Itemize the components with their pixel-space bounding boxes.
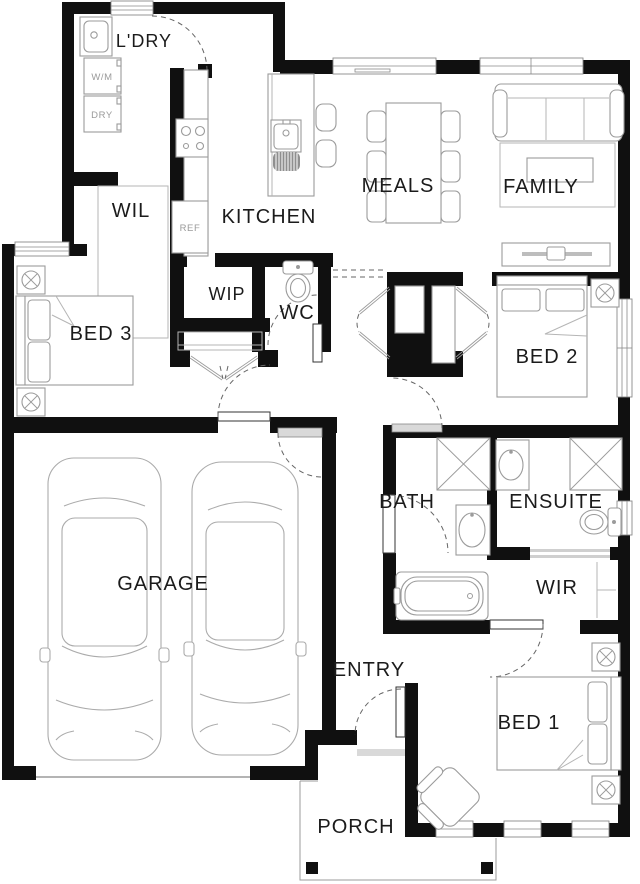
- wir-rails: [597, 562, 616, 618]
- floor-plan: L'DRY WIL KITCHEN WIP WC MEALS FAMILY BE…: [0, 0, 640, 884]
- room-label-bed1: BED 1: [498, 712, 561, 734]
- window-family-icon: [480, 58, 583, 74]
- entry-passage-leaf: [313, 324, 322, 362]
- room-label-wip: WIP: [209, 284, 246, 304]
- garage-contents: [36, 458, 306, 777]
- washer-label: W/M: [91, 72, 112, 83]
- garage-door-leaf: [278, 428, 322, 437]
- linen-double-doors: [357, 287, 390, 359]
- window-bed2-icon: [617, 299, 632, 397]
- bulkhead-dashes: [333, 270, 387, 277]
- vanity-basin-icon: [456, 505, 490, 555]
- linen-closet: [395, 286, 424, 333]
- room-label-bath: BATH: [379, 491, 435, 513]
- front-door-arc: [355, 689, 401, 735]
- room-label-wc: WC: [279, 302, 314, 324]
- room-label-porch: PORCH: [317, 816, 394, 838]
- room-label-family: FAMILY: [503, 176, 579, 198]
- downlight-icon: [592, 776, 620, 804]
- window-bed3-icon: [15, 242, 69, 256]
- room-label-bed2: BED 2: [516, 346, 579, 368]
- room-label-entry: ENTRY: [333, 659, 405, 681]
- family-furniture: [493, 84, 624, 266]
- room-label-ldry: L'DRY: [116, 31, 172, 51]
- cooktop-icon: [176, 119, 208, 157]
- bed2-door-arc: [392, 378, 442, 428]
- downlight-icon: [592, 643, 620, 671]
- front-door-threshold: [357, 749, 405, 756]
- shower-icon: [570, 438, 622, 490]
- dining-table-icon: [386, 103, 441, 223]
- shower-icon: [437, 438, 490, 490]
- room-label-wir: WIR: [536, 577, 578, 599]
- wc-toilet-icon: [283, 261, 313, 302]
- downlight-icon: [17, 266, 45, 294]
- floor-plan-svg: L'DRY WIL KITCHEN WIP WC MEALS FAMILY BE…: [0, 0, 640, 884]
- room-label-meals: MEALS: [362, 175, 435, 197]
- bathtub-icon: [394, 572, 488, 620]
- sofa-icon: [493, 84, 624, 141]
- fridge-label: REF: [180, 223, 201, 234]
- car-icon: [40, 458, 169, 760]
- window-bed1-icons: [436, 821, 609, 837]
- room-label-wil: WIL: [112, 200, 151, 222]
- wir-opening-lines: [530, 549, 610, 558]
- bed1-furniture: [405, 643, 621, 836]
- vanity-basin-icon: [496, 440, 529, 490]
- meals-furniture: [367, 103, 460, 223]
- ensuite-fixtures: [496, 438, 622, 536]
- room-label-kitchen: KITCHEN: [222, 206, 317, 228]
- bed-icon: [497, 276, 587, 397]
- hall-door-arc: [218, 365, 270, 417]
- window-laundry-icon: [111, 1, 153, 15]
- window-meals-icon: [333, 58, 436, 74]
- bed1-door-arc: [490, 624, 543, 677]
- cased-opening-niche: [178, 332, 262, 350]
- hall-door-leaf: [218, 412, 270, 421]
- porch-post: [306, 862, 318, 874]
- downlight-icon: [591, 279, 619, 307]
- room-label-garage: GARAGE: [117, 573, 209, 595]
- porch-post: [481, 862, 493, 874]
- downlight-icon: [17, 388, 45, 416]
- front-door-leaf: [396, 687, 405, 737]
- kitchen-sink-icon: [271, 120, 301, 152]
- room-label-bed3: BED 3: [70, 323, 133, 345]
- bath-fixtures: [394, 438, 490, 620]
- robe-double-doors: [456, 287, 489, 359]
- sink-drainer-icon: [273, 152, 300, 171]
- room-label-ensuite: ENSUITE: [509, 491, 603, 513]
- car-icon: [184, 462, 306, 755]
- bed1-door-leaf: [490, 620, 543, 629]
- tv-unit-icon: [502, 243, 610, 266]
- stool-icons: [316, 104, 336, 167]
- wil-splayed-doors: [190, 356, 258, 380]
- laundry-tub-icon: [80, 17, 112, 56]
- robe-icon: [432, 286, 455, 363]
- bed2-door-leaf: [392, 424, 442, 432]
- dryer-label: DRY: [91, 110, 113, 121]
